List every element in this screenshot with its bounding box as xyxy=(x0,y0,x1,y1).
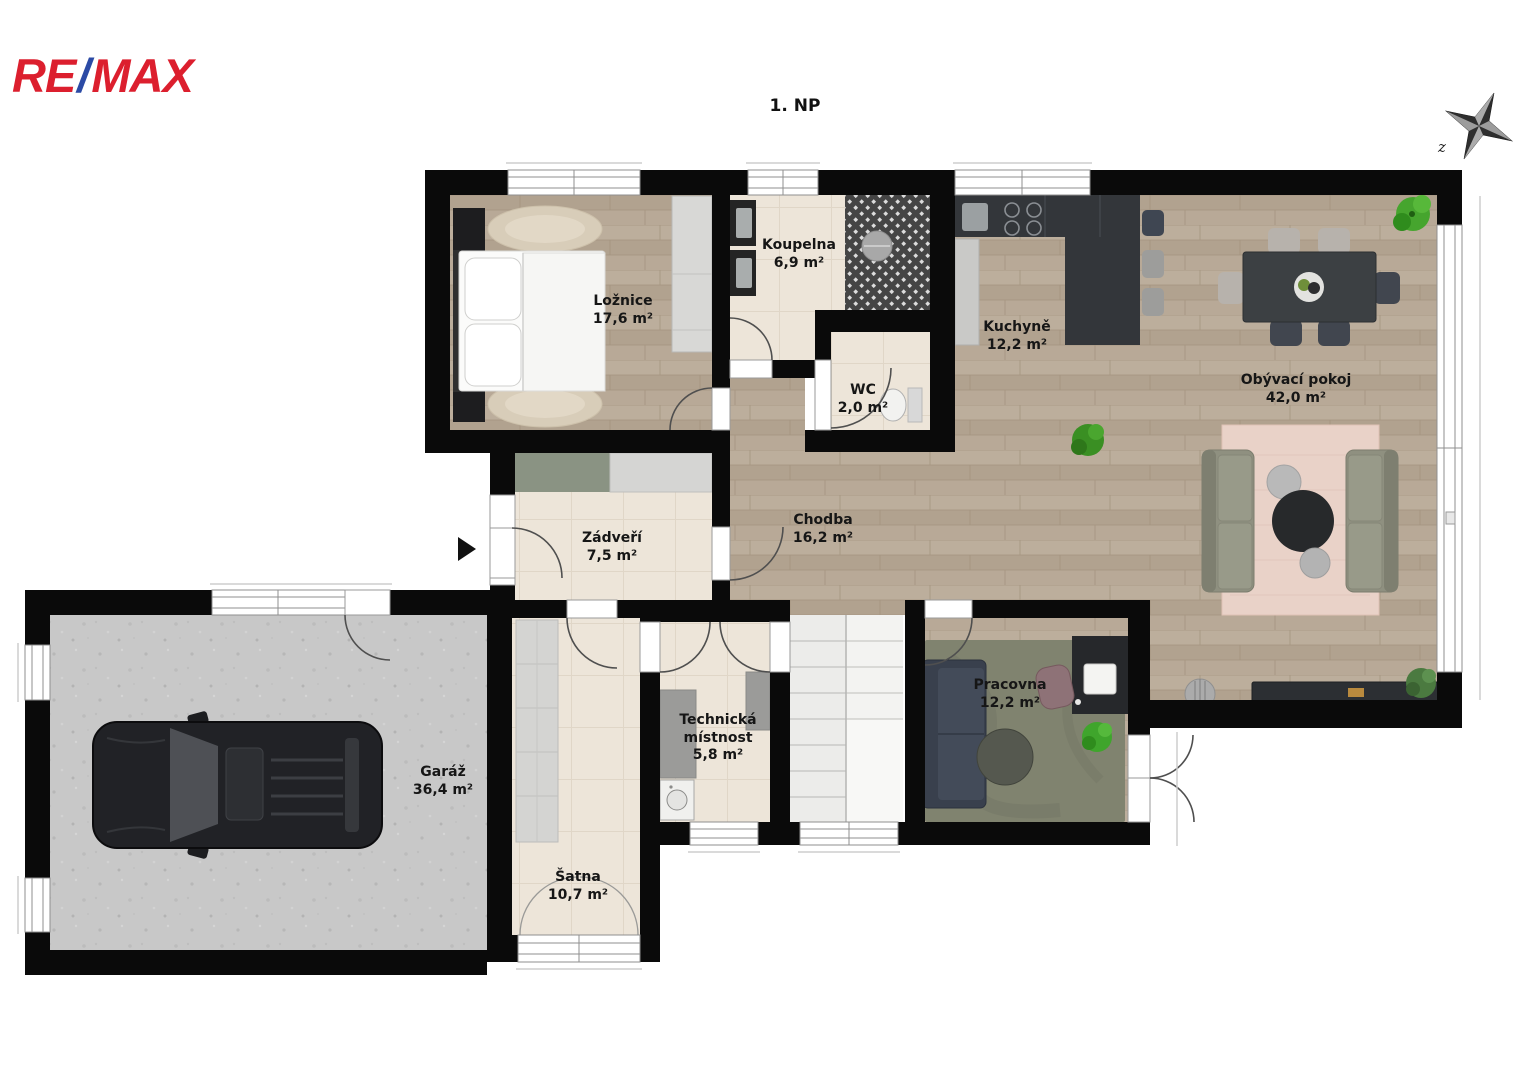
car-windshield xyxy=(170,728,218,842)
room-name: Technická místnost xyxy=(669,712,767,747)
plant-icon xyxy=(1406,668,1436,698)
dining-chair xyxy=(1270,320,1302,346)
room-area: 16,2 m² xyxy=(793,530,853,548)
window xyxy=(25,878,50,932)
mouse xyxy=(1075,699,1081,705)
window xyxy=(748,170,818,195)
room-label-kuchyne: Kuchyně 12,2 m² xyxy=(983,319,1050,354)
nightstand xyxy=(453,208,485,252)
room-name: Šatna xyxy=(548,869,608,887)
dining-chair xyxy=(1374,272,1400,304)
room-label-loznice: Ložnice 17,6 m² xyxy=(593,293,653,328)
kitchen-sink xyxy=(962,203,988,231)
room-area: 7,5 m² xyxy=(582,548,642,566)
room-area: 17,6 m² xyxy=(593,311,653,329)
french-door-arc xyxy=(1150,735,1193,778)
entrance-marker-icon xyxy=(458,537,476,561)
dining-chair xyxy=(1318,228,1350,254)
french-door-arc xyxy=(1150,778,1194,822)
room-label-wc: WC 2,0 m² xyxy=(838,382,888,417)
dining-chair xyxy=(1318,320,1350,346)
room-name: WC xyxy=(838,382,888,400)
room-name: Ložnice xyxy=(593,293,653,311)
decor-item xyxy=(1348,688,1364,697)
toilet-tank xyxy=(908,388,922,422)
room-name: Chodba xyxy=(793,512,853,530)
room-label-chodba: Chodba 16,2 m² xyxy=(793,512,853,547)
room-area: 5,8 m² xyxy=(669,747,767,765)
sink-basin xyxy=(736,258,752,288)
pillow xyxy=(465,258,521,320)
bar-stool xyxy=(1142,288,1164,316)
car-rear-window xyxy=(345,738,359,832)
window xyxy=(518,935,640,962)
car xyxy=(93,711,382,860)
room-label-satna: Šatna 10,7 m² xyxy=(548,869,608,904)
room-name: Kuchyně xyxy=(983,319,1050,337)
room-label-technicka: Technická místnost 5,8 m² xyxy=(669,712,767,765)
floorplan-page: { "logo": { "re": "RE", "slash": "/", "m… xyxy=(0,0,1527,1080)
room-name: Zádveří xyxy=(582,530,642,548)
coffee-table xyxy=(977,729,1033,785)
room-name: Garáž xyxy=(413,764,473,782)
side-table xyxy=(1300,548,1330,578)
room-area: 42,0 m² xyxy=(1241,390,1352,408)
window xyxy=(955,170,1090,195)
bar-stool xyxy=(1142,210,1164,236)
floor-plan xyxy=(0,0,1527,1080)
window xyxy=(508,170,640,195)
room-name: Pracovna xyxy=(973,677,1046,695)
window xyxy=(25,645,50,700)
room-label-obyvaci: Obývací pokoj 42,0 m² xyxy=(1241,372,1352,407)
room-area: 6,9 m² xyxy=(762,255,836,273)
window-wall-glass xyxy=(1437,225,1462,672)
coffee-table xyxy=(1272,490,1334,552)
room-name: Obývací pokoj xyxy=(1241,372,1352,390)
room-label-garaz: Garáž 36,4 m² xyxy=(413,764,473,799)
pillow xyxy=(465,324,521,386)
window xyxy=(690,822,758,845)
room-label-zadveri: Zádveří 7,5 m² xyxy=(582,530,642,565)
room-label-pracovna: Pracovna 12,2 m² xyxy=(973,677,1046,712)
room-area: 12,2 m² xyxy=(983,337,1050,355)
kitchen-island xyxy=(1065,237,1140,345)
sink-basin xyxy=(736,208,752,238)
window-handle xyxy=(1446,512,1455,524)
plant-icon xyxy=(1082,722,1112,752)
dining-chair xyxy=(1218,272,1244,304)
door-mat xyxy=(515,453,610,492)
dining-chair xyxy=(1268,228,1300,254)
room-area: 12,2 m² xyxy=(973,695,1046,713)
laptop xyxy=(1084,664,1116,694)
bar-stool xyxy=(1142,250,1164,278)
window xyxy=(212,590,345,615)
sofa xyxy=(1346,450,1398,592)
room-name: Koupelna xyxy=(762,237,836,255)
window xyxy=(800,822,898,845)
room-area: 10,7 m² xyxy=(548,887,608,905)
car-sunroof xyxy=(226,748,263,820)
entry-closet xyxy=(610,453,712,492)
sofa xyxy=(1202,450,1254,592)
room-label-koupelna: Koupelna 6,9 m² xyxy=(762,237,836,272)
room-area: 2,0 m² xyxy=(838,400,888,418)
fridge-cabinet xyxy=(955,239,979,345)
room-area: 36,4 m² xyxy=(413,782,473,800)
